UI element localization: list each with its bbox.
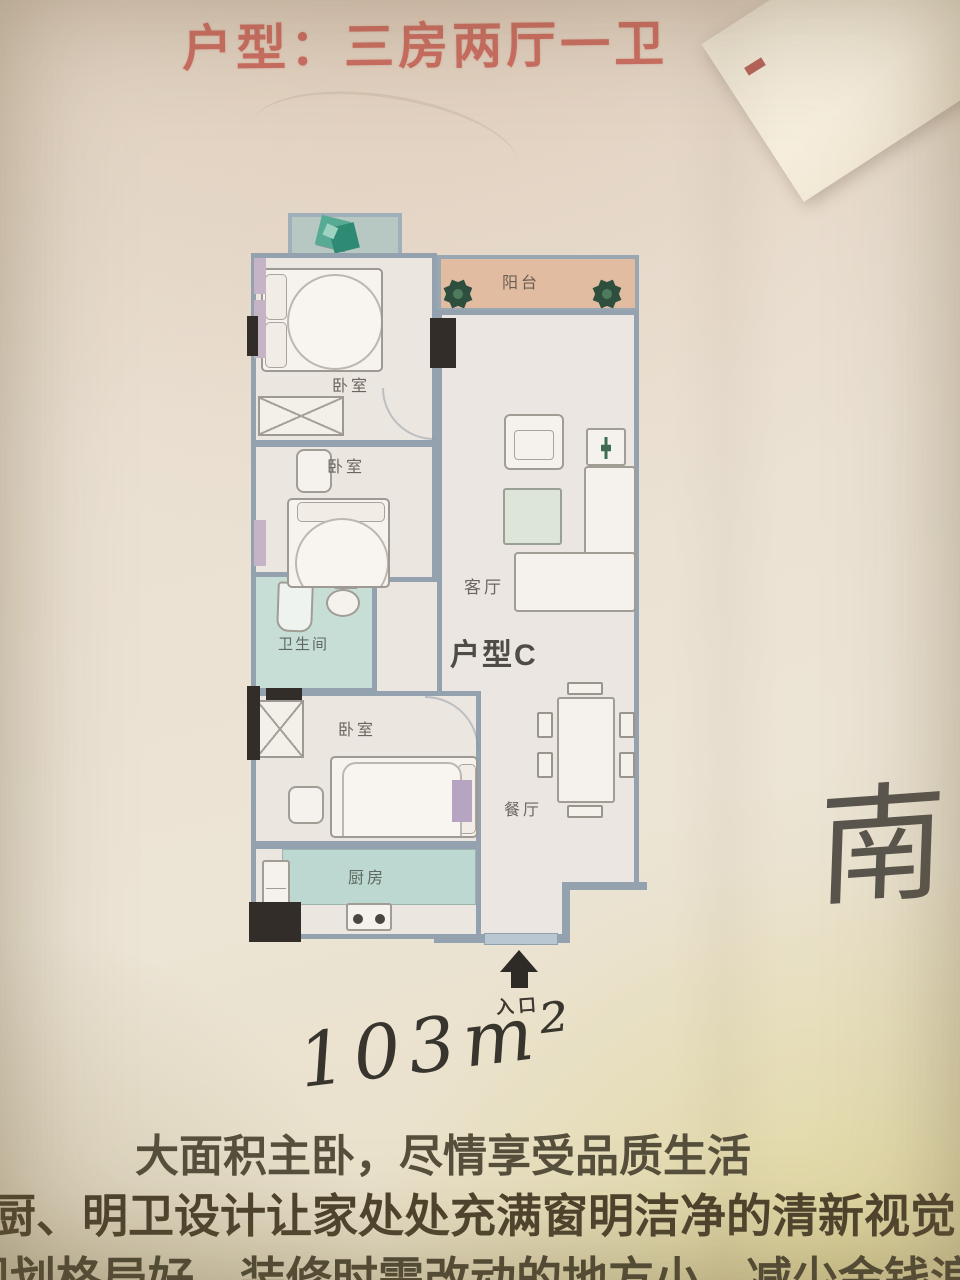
entry-door-sill [484,933,558,945]
dining-chair [537,712,553,738]
kitchen-fridge-divider [266,888,286,889]
wall-step-vertical [562,882,570,942]
dining-label: 餐厅 [504,796,542,820]
dining-chair [567,682,603,695]
living-label: 客厅 [464,573,504,598]
bedroom2-wall-accent [254,520,266,566]
bedroom1-pillow [265,322,287,368]
entrance-arrow-icon [500,950,538,972]
stove-burner-icon [353,914,363,924]
bedroom3-wardrobe [256,700,304,758]
entrance-arrow-stem [511,970,528,988]
bedroom3-label: 卧室 [338,716,376,740]
wall-jamb [247,686,260,760]
dining-chair [537,752,553,778]
living-plant-table [586,428,626,466]
footer-line2: 厨、明卫设计让家处处充满窗明洁净的清新视觉 [0,1180,960,1246]
wall-jamb [249,902,301,942]
kitchen-fridge [262,860,290,908]
poster-title: 户型：三房两厅一卫 [182,3,743,81]
balcony-label: 阳台 [502,269,540,293]
bedroom2-duvet [295,518,389,588]
plant-cross-icon [601,437,611,459]
handwritten-south: 南 [815,737,949,932]
bedroom3-duvet [342,762,462,838]
bathroom-label: 卫生间 [278,633,329,654]
wall-jamb [430,318,456,368]
bedroom3-nightstand [288,786,324,824]
bedroom2-label: 卧室 [327,453,365,477]
dining-chair [619,752,635,778]
dining-chair [619,712,635,738]
paper-shading-band [670,0,780,1280]
unit-type-label: 户型C [450,630,538,674]
bedroom3-pillow-accent [452,780,472,822]
bedroom2-bed [287,498,390,588]
footer-line1: 大面积主卧，尽情享受品质生活 [135,1120,835,1184]
wall-jamb [247,316,258,356]
corridor [377,575,437,695]
living-coffee-table [503,488,562,545]
kitchen-stove [346,903,392,931]
bedroom1-label: 卧室 [332,372,370,396]
bedroom1-bed [261,268,383,372]
wall-step-horizontal [562,882,647,890]
handwritten-area: 103m² [294,985,583,1105]
dining-table [557,697,615,803]
dining-chair [567,805,603,818]
footer-line3: 规划格局好，装修时需改动的地方小，减少金钱浪 [0,1243,960,1280]
living-armchair-cushion [514,430,554,460]
living-sofa-bottom [514,552,636,612]
bedroom1-duvet [287,274,383,370]
bathroom-toilet-bowl [326,589,360,617]
bathroom-shower [276,581,314,632]
stove-burner-icon [375,914,385,924]
bedroom1-pillow [265,274,287,320]
bedroom1-wardrobe [258,396,344,436]
living-armchair [504,414,564,470]
floorplan-poster-photo: 户型：三房两厅一卫 卧室 阳台 卧室 卫生间 [0,0,960,1280]
bedroom1-wall-accent [254,258,266,294]
wall-jamb [266,688,302,700]
kitchen-label: 厨房 [348,864,386,888]
paper-crease [244,75,527,219]
